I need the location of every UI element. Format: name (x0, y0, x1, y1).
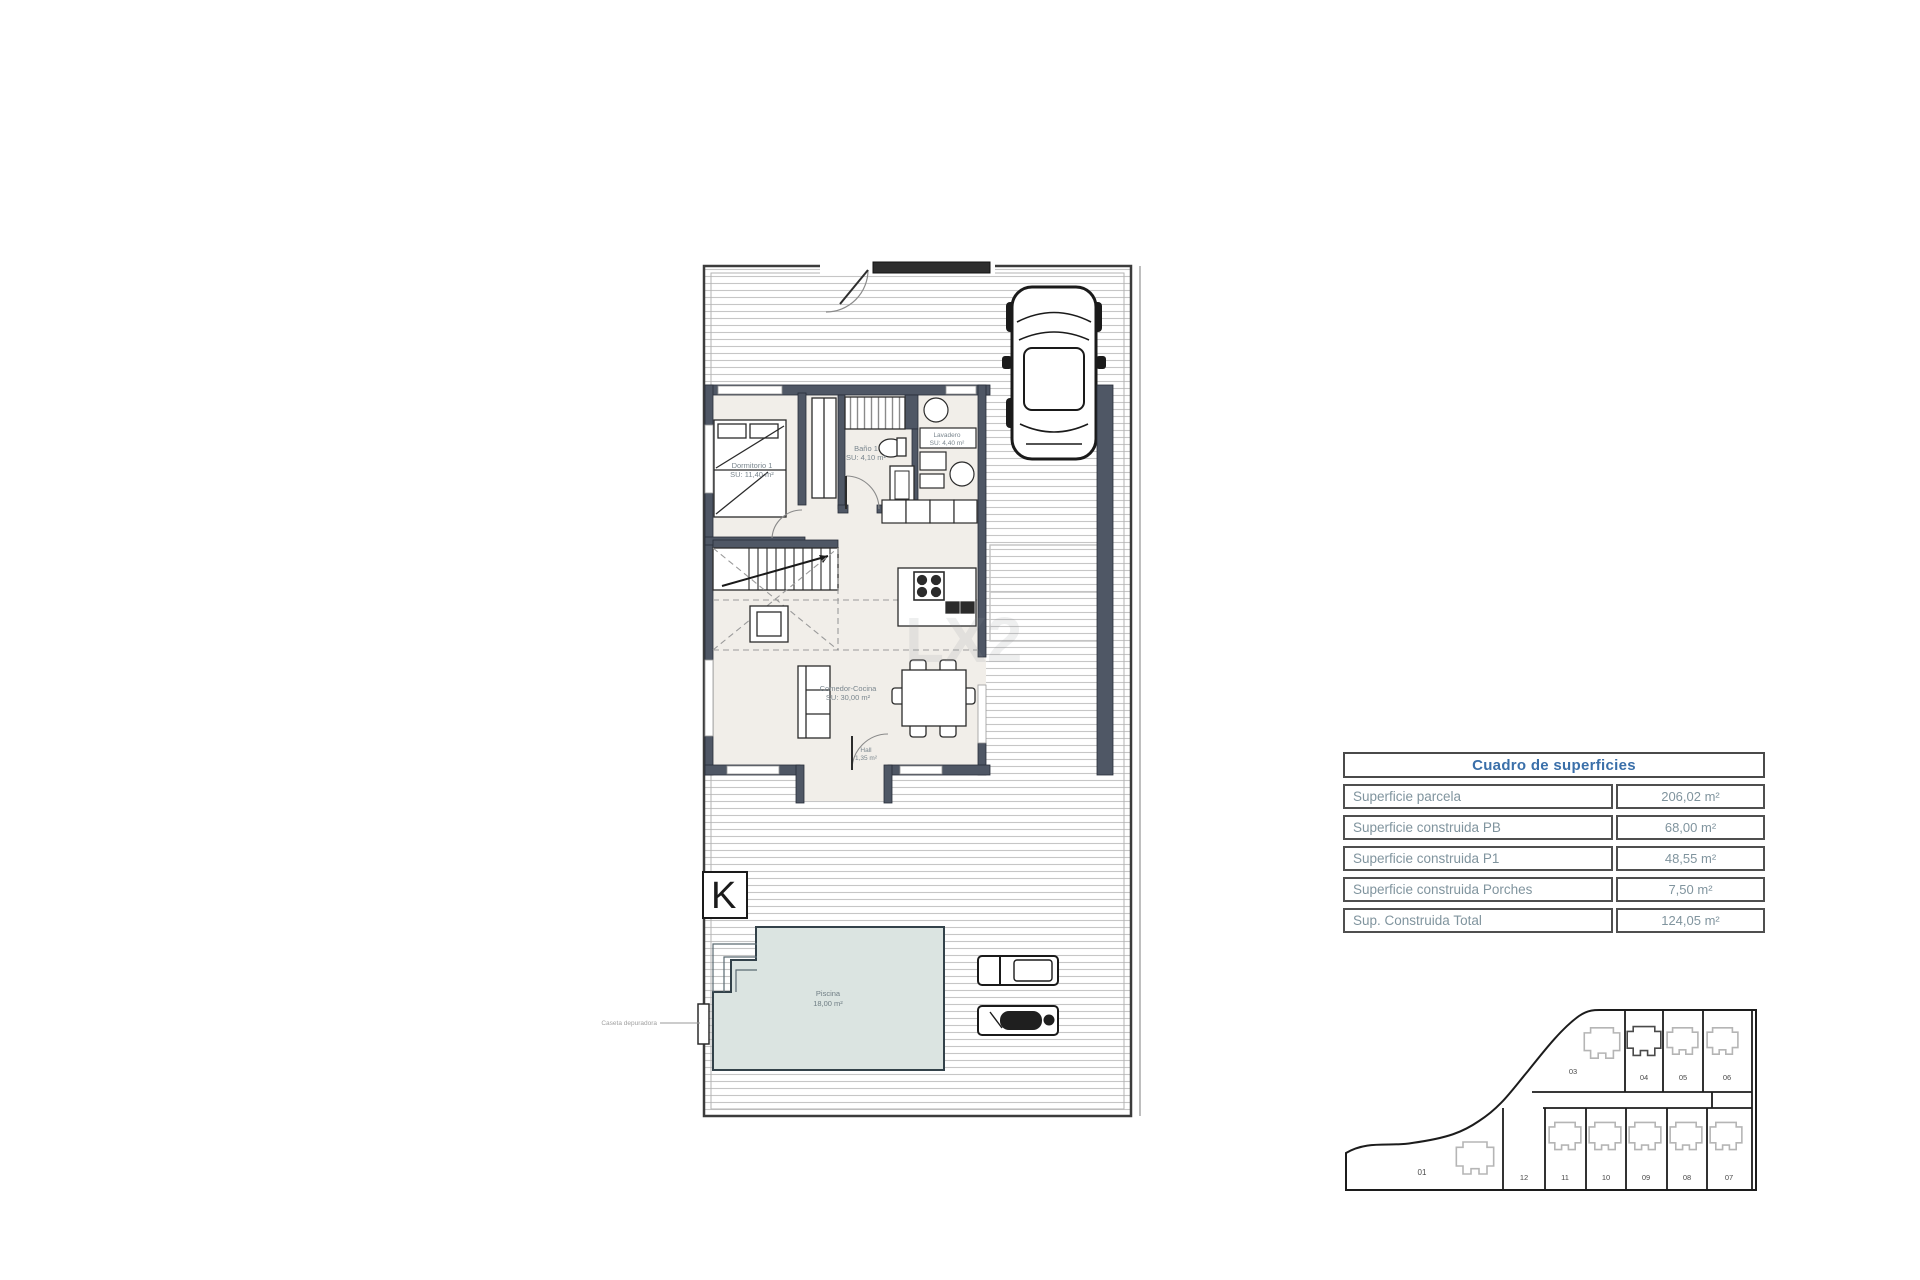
parcel-label-top-1: 04 (1640, 1073, 1648, 1082)
surface-row-label: Sup. Construida Total (1343, 908, 1613, 933)
parcel-label-bot-4: 08 (1683, 1173, 1691, 1182)
parcel-label-top-3: 06 (1723, 1073, 1731, 1082)
pool-label: Piscina (816, 989, 841, 998)
pool-equipment (660, 1004, 709, 1044)
surface-table-title: Cuadro de superficies (1343, 752, 1765, 778)
parcel-label-01: 01 (1418, 1168, 1427, 1177)
table-row: Superficie construida PB 68,00 m² (1343, 815, 1765, 840)
table-row: Superficie construida P1 48,55 m² (1343, 846, 1765, 871)
parcel-label-bot-2: 10 (1602, 1173, 1610, 1182)
parcel-label-bot-5: 07 (1725, 1173, 1733, 1182)
room-area-laundry: SU: 4,40 m² (930, 440, 966, 447)
table-row: Superficie parcela 206,02 m² (1343, 784, 1765, 809)
surface-row-value: 124,05 m² (1616, 908, 1765, 933)
parcel-label-bot-1: 11 (1561, 1173, 1569, 1182)
surface-row-value: 48,55 m² (1616, 846, 1765, 871)
surface-row-value: 206,02 m² (1616, 784, 1765, 809)
room-area-hall: 1,35 m² (855, 755, 878, 762)
room-area-living: SU: 30,00 m² (826, 693, 871, 702)
drawing-sheet: K LX2 Dormitorio 1 SU: 11,40 m² Baño 1 S… (0, 0, 1920, 1280)
surface-row-label: Superficie construida P1 (1343, 846, 1613, 871)
table-row: Sup. Construida Total 124,05 m² (1343, 908, 1765, 933)
room-label-bathroom: Baño 1 (854, 444, 878, 453)
parcel-label-bot-0: 12 (1520, 1173, 1528, 1182)
car (1002, 287, 1106, 459)
watermark: LX2 (905, 604, 1022, 676)
parcel-label-top-0: 03 (1569, 1067, 1577, 1076)
room-label-laundry: Lavadero (933, 432, 960, 439)
surface-row-label: Superficie construida Porches (1343, 877, 1613, 902)
room-area-bathroom: SU: 4,10 m² (846, 453, 887, 462)
pool-area: 18,00 m² (813, 999, 843, 1008)
parcel-label-top-2: 05 (1679, 1073, 1687, 1082)
plan-drawing: K LX2 Dormitorio 1 SU: 11,40 m² Baño 1 S… (0, 0, 1920, 1280)
table-row: Superficie construida Porches 7,50 m² (1343, 877, 1765, 902)
plot: K LX2 Dormitorio 1 SU: 11,40 m² Baño 1 S… (601, 262, 1140, 1116)
room-label-hall: Hall (860, 747, 872, 754)
surface-row-value: 7,50 m² (1616, 877, 1765, 902)
room-label-living: Comedor-Cocina (820, 684, 878, 693)
site-boundary (1346, 1010, 1756, 1190)
orientation-mark: K (703, 872, 747, 918)
surface-row-label: Superficie construida PB (1343, 815, 1613, 840)
site-plan: 01 03 04 05 06 12 11 10 09 08 07 (1346, 1010, 1756, 1190)
orientation-letter: K (711, 875, 736, 917)
stairs (713, 548, 838, 590)
pool-equipment-label: Caseta depuradora (601, 1020, 657, 1027)
surface-row-value: 68,00 m² (1616, 815, 1765, 840)
room-area-bedroom: SU: 11,40 m² (730, 470, 774, 479)
parcel-label-bot-3: 09 (1642, 1173, 1650, 1182)
surface-table: Cuadro de superficies Superficie parcela… (1343, 752, 1765, 933)
surface-row-label: Superficie parcela (1343, 784, 1613, 809)
room-label-bedroom: Dormitorio 1 (732, 461, 773, 470)
